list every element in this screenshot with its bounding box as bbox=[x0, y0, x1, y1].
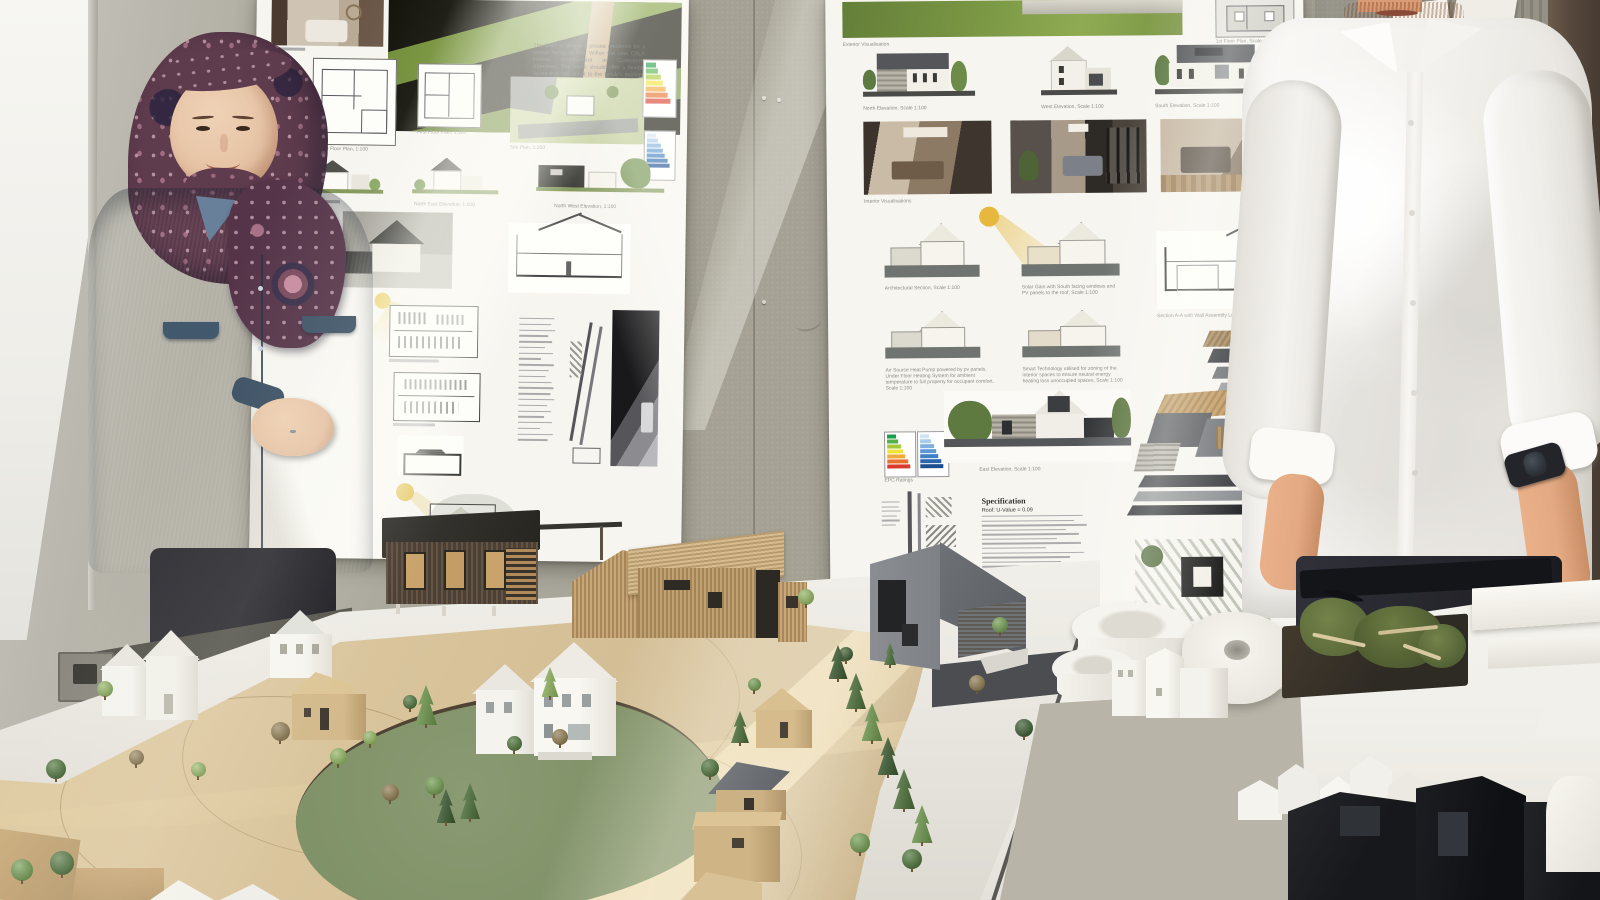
brief-text: The Brief: to design a private residence… bbox=[533, 43, 645, 75]
section-roof-line bbox=[538, 212, 582, 230]
illegible-text-line bbox=[982, 529, 1066, 531]
model-roof bbox=[268, 610, 332, 636]
model-window bbox=[732, 838, 744, 848]
model-annex bbox=[778, 582, 807, 642]
model-window bbox=[562, 694, 571, 707]
black-highlight bbox=[1438, 812, 1468, 856]
elevation-tree bbox=[620, 158, 650, 188]
epc-chart bbox=[642, 59, 677, 117]
render-upper-wall bbox=[1036, 414, 1084, 438]
section-drawing bbox=[885, 311, 980, 364]
elevation-groundline bbox=[536, 187, 664, 193]
epc-band bbox=[920, 454, 938, 458]
render-stone-wall bbox=[992, 414, 1036, 438]
model-window-panel bbox=[404, 552, 426, 590]
model-house-card bbox=[746, 688, 824, 750]
render-dormer-window bbox=[1048, 396, 1070, 412]
model-wall bbox=[638, 568, 756, 638]
socket-opening bbox=[73, 664, 97, 684]
glazed-partition-shape bbox=[1106, 127, 1140, 183]
epc-band bbox=[887, 454, 905, 458]
illegible-text-line bbox=[518, 422, 552, 424]
render-tree bbox=[1112, 397, 1131, 437]
illegible-text-line bbox=[518, 416, 544, 418]
model-window bbox=[312, 644, 319, 654]
render-garage bbox=[1084, 418, 1114, 438]
epc-band bbox=[646, 92, 668, 97]
section-roof bbox=[416, 437, 446, 453]
section-upper bbox=[1060, 326, 1106, 348]
illegible-text-line bbox=[519, 323, 551, 325]
elevation-groundline bbox=[1041, 90, 1117, 96]
model-window bbox=[582, 694, 591, 707]
moss-landscape-model bbox=[1282, 598, 1472, 698]
grey-house-model bbox=[862, 540, 1077, 705]
elevation-wall bbox=[1051, 60, 1087, 92]
model-window-panel bbox=[444, 550, 466, 590]
detail-hatch bbox=[926, 497, 952, 517]
elevation-stone-wall bbox=[877, 69, 907, 91]
model-window bbox=[544, 724, 553, 738]
model-window bbox=[304, 708, 311, 717]
illegible-text-line bbox=[519, 381, 552, 383]
epc-chart bbox=[884, 431, 916, 477]
section-upper bbox=[920, 241, 964, 267]
elevation-drawing bbox=[1041, 46, 1117, 101]
white-bar-model bbox=[1488, 633, 1600, 669]
model-dark-face bbox=[756, 570, 780, 638]
illegible-text-line bbox=[882, 501, 900, 502]
model-door bbox=[780, 722, 788, 738]
model-window bbox=[296, 644, 303, 654]
white-bar-model bbox=[1472, 579, 1600, 630]
elevation-roof-band bbox=[877, 53, 949, 70]
dark-interior-photo bbox=[610, 310, 659, 467]
section-figure bbox=[566, 261, 571, 275]
white-block bbox=[1180, 668, 1228, 718]
model-door bbox=[164, 694, 173, 714]
section-caption: Air Source Heat Pump powered by pv panel… bbox=[885, 367, 995, 392]
interior-render-photo bbox=[1010, 119, 1147, 193]
table-shape bbox=[892, 161, 944, 179]
model-wall bbox=[534, 678, 616, 756]
epc-band bbox=[920, 459, 941, 463]
elevation-sign bbox=[550, 169, 562, 175]
skylight-shape bbox=[1068, 124, 1088, 132]
model-roof bbox=[290, 672, 354, 696]
jacket-button bbox=[258, 346, 263, 351]
siteplan-tree bbox=[1141, 545, 1163, 567]
epc-band bbox=[887, 434, 896, 438]
illegible-text-line bbox=[518, 439, 548, 441]
panel-screw bbox=[777, 98, 781, 102]
elevation-groundline bbox=[863, 91, 975, 97]
site-road bbox=[518, 118, 639, 139]
epc-band bbox=[646, 74, 661, 79]
epc-band bbox=[887, 444, 901, 448]
render-caption: East Elevation, Scale 1:100 bbox=[979, 466, 1069, 473]
plant-shape bbox=[1019, 150, 1039, 180]
epc-band bbox=[920, 434, 929, 438]
model-house-card bbox=[290, 672, 372, 740]
illegible-text-line bbox=[519, 364, 554, 366]
model-glazing bbox=[568, 724, 590, 740]
shirt-button bbox=[1409, 210, 1415, 216]
illegible-text-line bbox=[519, 329, 555, 331]
spec-text-lines bbox=[517, 318, 557, 475]
model-leg bbox=[442, 606, 446, 616]
model-window bbox=[1118, 670, 1123, 677]
plan-caption: First Floor Plan, 1:100 bbox=[417, 129, 487, 136]
epc-band bbox=[647, 133, 656, 137]
illegible-text-line bbox=[519, 335, 548, 337]
section-upper bbox=[921, 327, 965, 349]
illegible-text-line bbox=[882, 524, 896, 525]
woman-hands bbox=[252, 398, 334, 456]
black-highlight bbox=[1340, 806, 1380, 836]
appliance-shape bbox=[641, 402, 653, 432]
illegible-text-line bbox=[518, 399, 554, 401]
site-tree bbox=[544, 85, 558, 99]
illegible-text-line bbox=[518, 428, 540, 430]
elevation-tree bbox=[863, 70, 876, 90]
model-step bbox=[538, 752, 592, 760]
epc-band bbox=[647, 138, 658, 142]
illegible-text-line bbox=[519, 352, 553, 354]
illegible-text-line bbox=[519, 347, 545, 349]
detail-footing bbox=[572, 447, 600, 463]
model-door bbox=[320, 708, 329, 730]
illegible-text-line bbox=[519, 376, 546, 378]
section-drawing bbox=[1021, 222, 1120, 281]
panel-screw bbox=[762, 96, 766, 100]
illegible-text-line bbox=[882, 515, 897, 516]
model-roof bbox=[530, 642, 618, 682]
illegible-text-line bbox=[982, 520, 1074, 522]
illegible-text-line bbox=[519, 358, 541, 360]
elevation-window bbox=[923, 73, 927, 82]
detail-hatch bbox=[570, 341, 583, 377]
elevation-caption: North East Elevation, 1:100 bbox=[414, 201, 494, 208]
woman-eye bbox=[196, 126, 210, 131]
model-corner-brown bbox=[0, 829, 80, 900]
section-roof-line bbox=[578, 214, 621, 234]
detail-member bbox=[579, 326, 602, 445]
illegible-text-line bbox=[518, 433, 553, 435]
illegible-text-line bbox=[982, 524, 1087, 526]
woman-ring bbox=[290, 430, 296, 433]
model-window bbox=[280, 644, 287, 654]
epc-band bbox=[646, 86, 666, 91]
interior-render-photo bbox=[863, 121, 992, 195]
model-window bbox=[544, 694, 553, 707]
model-leg bbox=[492, 606, 496, 616]
section-wall-line bbox=[1164, 247, 1166, 291]
elevation-glazing bbox=[1089, 74, 1103, 86]
white-tower bbox=[1146, 648, 1184, 718]
illegible-text-line bbox=[518, 387, 553, 389]
model-window bbox=[504, 702, 512, 713]
model-window bbox=[486, 702, 494, 713]
elevation-caption: West Elevation, Scale 1:100 bbox=[1041, 104, 1121, 111]
woman-eye bbox=[236, 126, 250, 131]
white-corner-model bbox=[1546, 776, 1600, 872]
jacket-button bbox=[258, 286, 263, 291]
exterior-render-photo bbox=[842, 0, 1182, 38]
section-drawing bbox=[884, 223, 980, 282]
detail-drawing bbox=[560, 321, 608, 476]
section-caption: Solar Gain with South facing windows and… bbox=[1022, 284, 1122, 297]
model-wall bbox=[292, 694, 366, 740]
presenter-woman bbox=[0, 0, 420, 700]
epc-band bbox=[887, 439, 898, 443]
model-house-white-large bbox=[472, 642, 634, 764]
model-window-slot bbox=[708, 592, 722, 608]
elevation-drawing bbox=[412, 151, 499, 198]
section-floor-line bbox=[516, 253, 622, 255]
render-fence bbox=[944, 437, 1131, 447]
elevation-caption: North West Elevation, 1:100 bbox=[554, 203, 634, 210]
illegible-text-line bbox=[982, 533, 1079, 535]
model-roof bbox=[752, 688, 812, 712]
model-window-slot bbox=[664, 580, 690, 590]
section-groundmass bbox=[1022, 264, 1120, 277]
model-window bbox=[902, 624, 918, 646]
section-upper bbox=[1059, 240, 1105, 266]
spec-roof-value: Roof: U-Value = 0.09 bbox=[982, 507, 1097, 514]
epc-band bbox=[920, 444, 934, 448]
epc-band bbox=[920, 439, 931, 443]
illegible-text-line bbox=[518, 404, 547, 406]
section-drawing bbox=[1022, 310, 1120, 363]
epc-band bbox=[646, 68, 658, 73]
section-groundmass bbox=[1022, 346, 1120, 358]
render-house-hint bbox=[1022, 0, 1182, 14]
elevation-window bbox=[1059, 66, 1064, 73]
section-caption: Architectural Section, Scale 1:100 bbox=[885, 285, 980, 292]
man-mouth bbox=[1376, 10, 1418, 16]
shirt-button bbox=[1408, 120, 1414, 126]
corrugated-house-model bbox=[572, 540, 807, 642]
model-window bbox=[744, 798, 754, 810]
epc-band bbox=[645, 98, 670, 103]
model-leg bbox=[396, 604, 400, 614]
epc-band bbox=[647, 143, 661, 147]
site-plan-drawing bbox=[510, 77, 645, 145]
illegible-text-line bbox=[882, 506, 899, 507]
studio-photo: Ground Floor Plan, 1:100 First Floor Pla… bbox=[0, 0, 1600, 900]
model-wall bbox=[102, 666, 152, 716]
sofa-shape bbox=[1063, 156, 1103, 176]
illegible-text-line bbox=[519, 318, 554, 320]
section-furniture bbox=[436, 315, 466, 325]
jacket-pocket-flap bbox=[163, 322, 219, 339]
model-house-white bbox=[262, 610, 342, 680]
elevation-roof bbox=[430, 157, 462, 170]
illegible-text-line bbox=[519, 370, 549, 372]
site-tree bbox=[607, 86, 619, 98]
section-groundmass bbox=[885, 265, 980, 278]
section-wall-line bbox=[516, 235, 518, 277]
elevation-window bbox=[1059, 78, 1064, 85]
spec-title: Specification bbox=[982, 496, 1097, 506]
black-block bbox=[1416, 776, 1526, 900]
shirt-button bbox=[1411, 390, 1417, 396]
floor-plan-drawing bbox=[417, 63, 482, 128]
epc-band bbox=[646, 62, 656, 67]
chart-caption: EPC Ratings bbox=[884, 477, 944, 484]
model-slab-brown bbox=[64, 868, 164, 900]
elevation-groundline bbox=[412, 189, 498, 194]
photo-caption: Interior Visualisations bbox=[864, 198, 954, 205]
epc-band bbox=[920, 449, 936, 453]
illegible-text-line bbox=[518, 393, 550, 395]
elevation-drawing bbox=[536, 149, 665, 201]
site-house-footprint bbox=[566, 95, 594, 115]
illegible-text-line bbox=[519, 341, 552, 343]
render-door bbox=[1002, 420, 1012, 434]
model-wall bbox=[476, 690, 536, 754]
moss-clump bbox=[1418, 624, 1466, 668]
detail-notes bbox=[882, 501, 902, 541]
panel-screw bbox=[762, 300, 766, 304]
axon-stone-wall bbox=[1134, 443, 1181, 471]
epc-band bbox=[887, 464, 910, 468]
model-slat-screen bbox=[506, 548, 536, 600]
section-groundmass bbox=[885, 347, 980, 359]
woman-nose bbox=[220, 134, 228, 152]
section-drawing bbox=[508, 223, 631, 295]
illegible-text-line bbox=[518, 410, 551, 412]
shirt-button bbox=[1412, 470, 1418, 476]
elevation-wing bbox=[462, 176, 482, 190]
shirt-button bbox=[1410, 300, 1416, 306]
section-caption: Smart Technology utilised for zoning of … bbox=[1022, 365, 1127, 384]
elevation-window bbox=[913, 73, 917, 82]
model-house-white bbox=[100, 630, 215, 725]
epc-band bbox=[887, 459, 908, 463]
elevation-window bbox=[933, 73, 937, 82]
jacket-pocket-flap bbox=[302, 316, 356, 333]
illegible-text-line bbox=[982, 515, 1083, 517]
elevation-drawing bbox=[863, 51, 975, 102]
model-window-slot bbox=[786, 596, 798, 608]
epc-band bbox=[646, 80, 663, 85]
epc-band bbox=[887, 449, 903, 453]
model-window bbox=[1156, 688, 1162, 696]
elevation-caption: North Elevation, Scale 1:100 bbox=[863, 105, 953, 112]
illegible-text-line bbox=[882, 511, 901, 512]
elevation-tree bbox=[951, 61, 967, 91]
epc-band bbox=[920, 464, 943, 468]
massing-house bbox=[1238, 780, 1282, 820]
white-building-models bbox=[1112, 648, 1232, 724]
model-window bbox=[1128, 670, 1133, 677]
render-photo bbox=[944, 389, 1132, 463]
illegible-text-line bbox=[882, 520, 900, 521]
render-caption: Exterior Visualisation bbox=[843, 41, 933, 48]
model-window-panel bbox=[484, 550, 506, 590]
section-wall-line bbox=[621, 234, 623, 278]
skylight-shape bbox=[903, 127, 947, 137]
